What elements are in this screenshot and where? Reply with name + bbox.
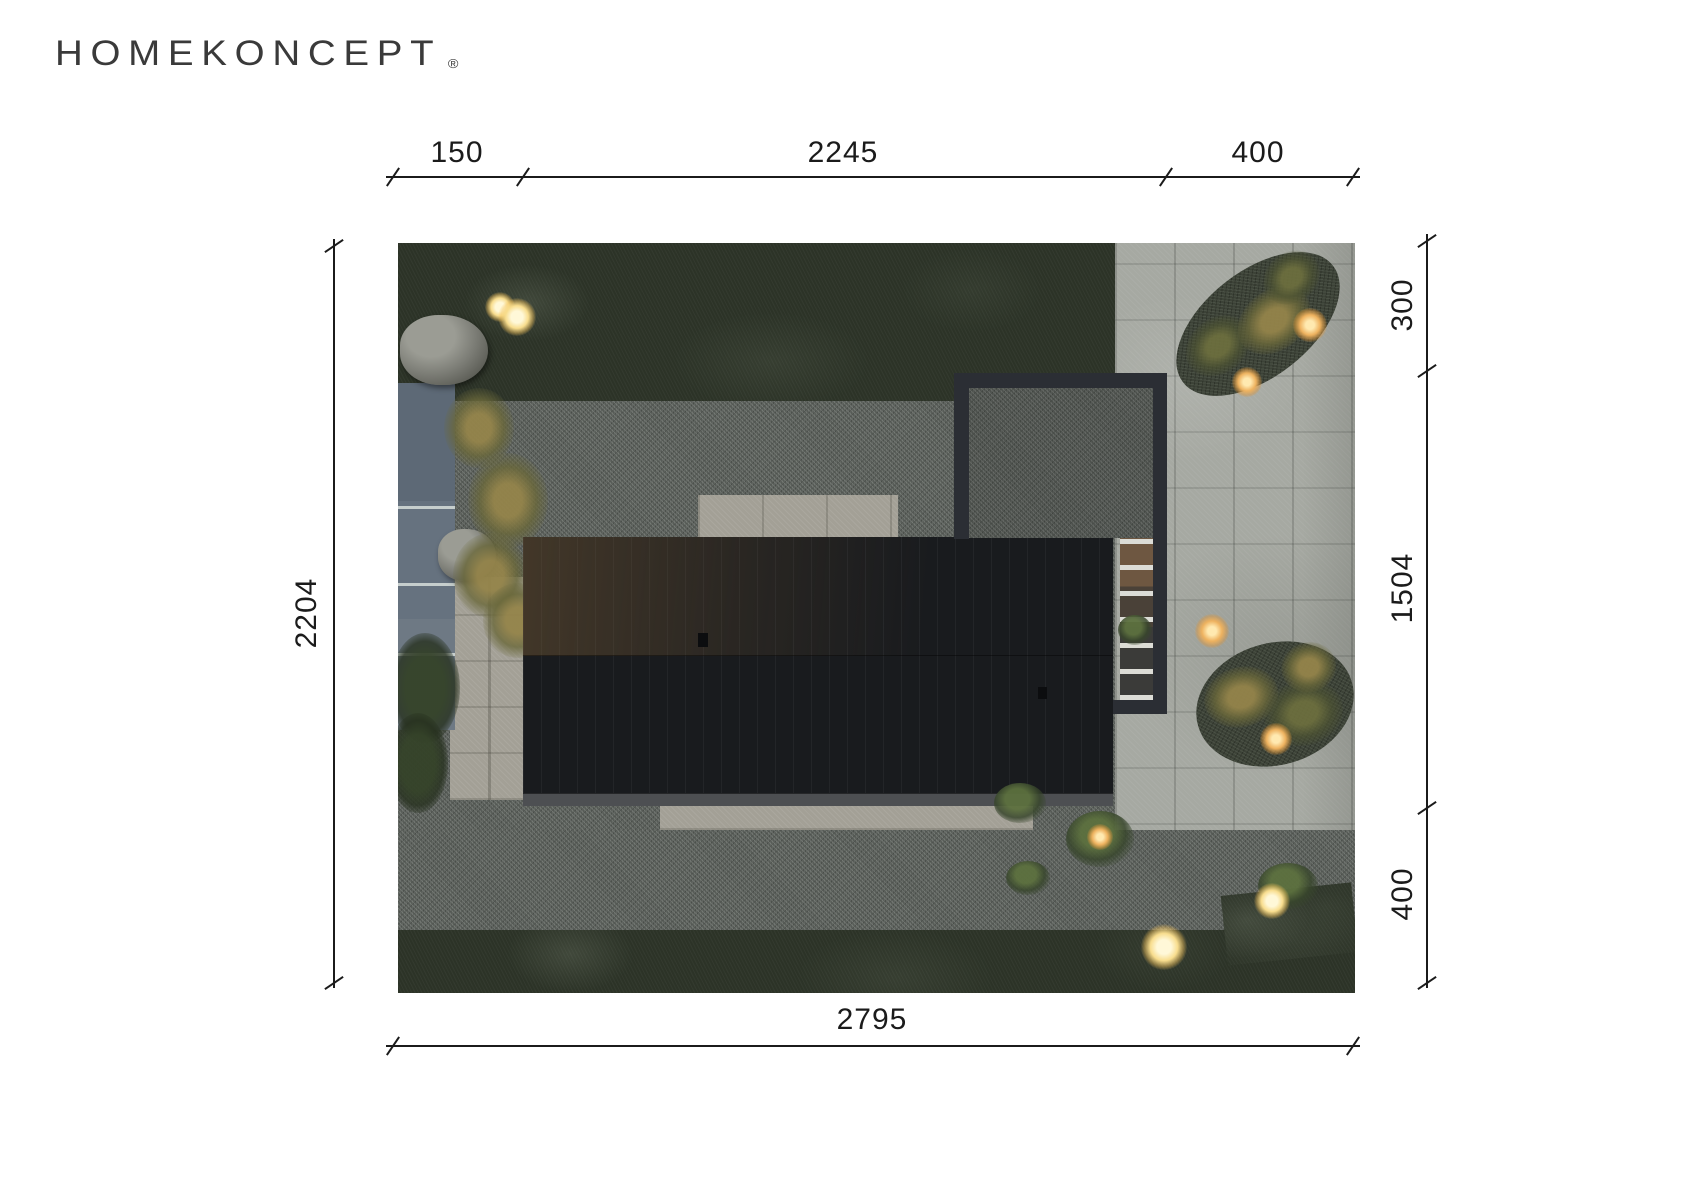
house-roof (523, 537, 1113, 805)
dimension-line-right (1426, 234, 1428, 988)
pergola-frame-bottom (1113, 700, 1167, 714)
dim-left-total: 2204 (290, 578, 324, 649)
dim-top-left: 150 (430, 136, 483, 170)
boulder (400, 315, 488, 385)
shrub (994, 783, 1046, 823)
gravel-band-bottom (398, 830, 1355, 930)
dimension-line-bottom (386, 1045, 1360, 1047)
brand-logo-text: HOMEKONCEPT (55, 36, 441, 71)
pool-cover-joint (398, 506, 455, 509)
dim-top-mid: 2245 (808, 136, 879, 170)
grass-area-bottom (398, 930, 1355, 993)
plant-under-canopy (1118, 615, 1152, 645)
stone-terrace-below (660, 805, 1033, 830)
dimension-line-top (386, 176, 1360, 178)
dimension-tick (1417, 976, 1436, 990)
pool-cover-joint (398, 583, 455, 586)
dim-right-mid: 1504 (1386, 553, 1420, 624)
dimension-tick (1417, 801, 1436, 815)
dim-right-bottom: 400 (1386, 867, 1420, 920)
dimension-tick (1346, 167, 1360, 186)
dimension-tick (324, 976, 343, 990)
shrub (1006, 861, 1050, 895)
pergola-interior-gravel (969, 388, 1153, 538)
pergola-frame-right (1153, 373, 1167, 714)
garden-light (1141, 924, 1187, 970)
garden-light (1087, 824, 1113, 850)
site-plan-sheet: HOMEKONCEPT ® (0, 0, 1698, 1200)
roof-upper-slope (523, 537, 1113, 656)
dimension-line-left (333, 239, 335, 988)
garden-light (1232, 367, 1262, 397)
roof-vent (1038, 687, 1047, 699)
stone-slabs-terrace (698, 495, 898, 537)
aerial-render (398, 243, 1355, 993)
dimension-tick (1346, 1036, 1360, 1055)
dim-right-top: 300 (1386, 278, 1420, 331)
dimension-tick (386, 167, 400, 186)
dim-bottom-total: 2795 (837, 1003, 908, 1037)
dimension-tick (1417, 234, 1436, 248)
pergola-frame-left (954, 373, 969, 539)
garden-light (1195, 614, 1229, 648)
dimension-tick (516, 167, 530, 186)
brand-logo: HOMEKONCEPT ® (55, 36, 458, 71)
dim-top-right: 400 (1231, 136, 1284, 170)
dimension-tick (324, 239, 343, 253)
garden-light (1293, 308, 1327, 342)
garden-light (1254, 883, 1290, 919)
garden-light (1260, 723, 1292, 755)
dimension-tick (1417, 364, 1436, 378)
dimension-tick (1159, 167, 1173, 186)
registered-trademark-icon: ® (448, 57, 459, 71)
roof-vent (698, 633, 708, 647)
pergola-frame-top (954, 373, 1167, 388)
garden-light (498, 298, 536, 336)
dimension-tick (386, 1036, 400, 1055)
